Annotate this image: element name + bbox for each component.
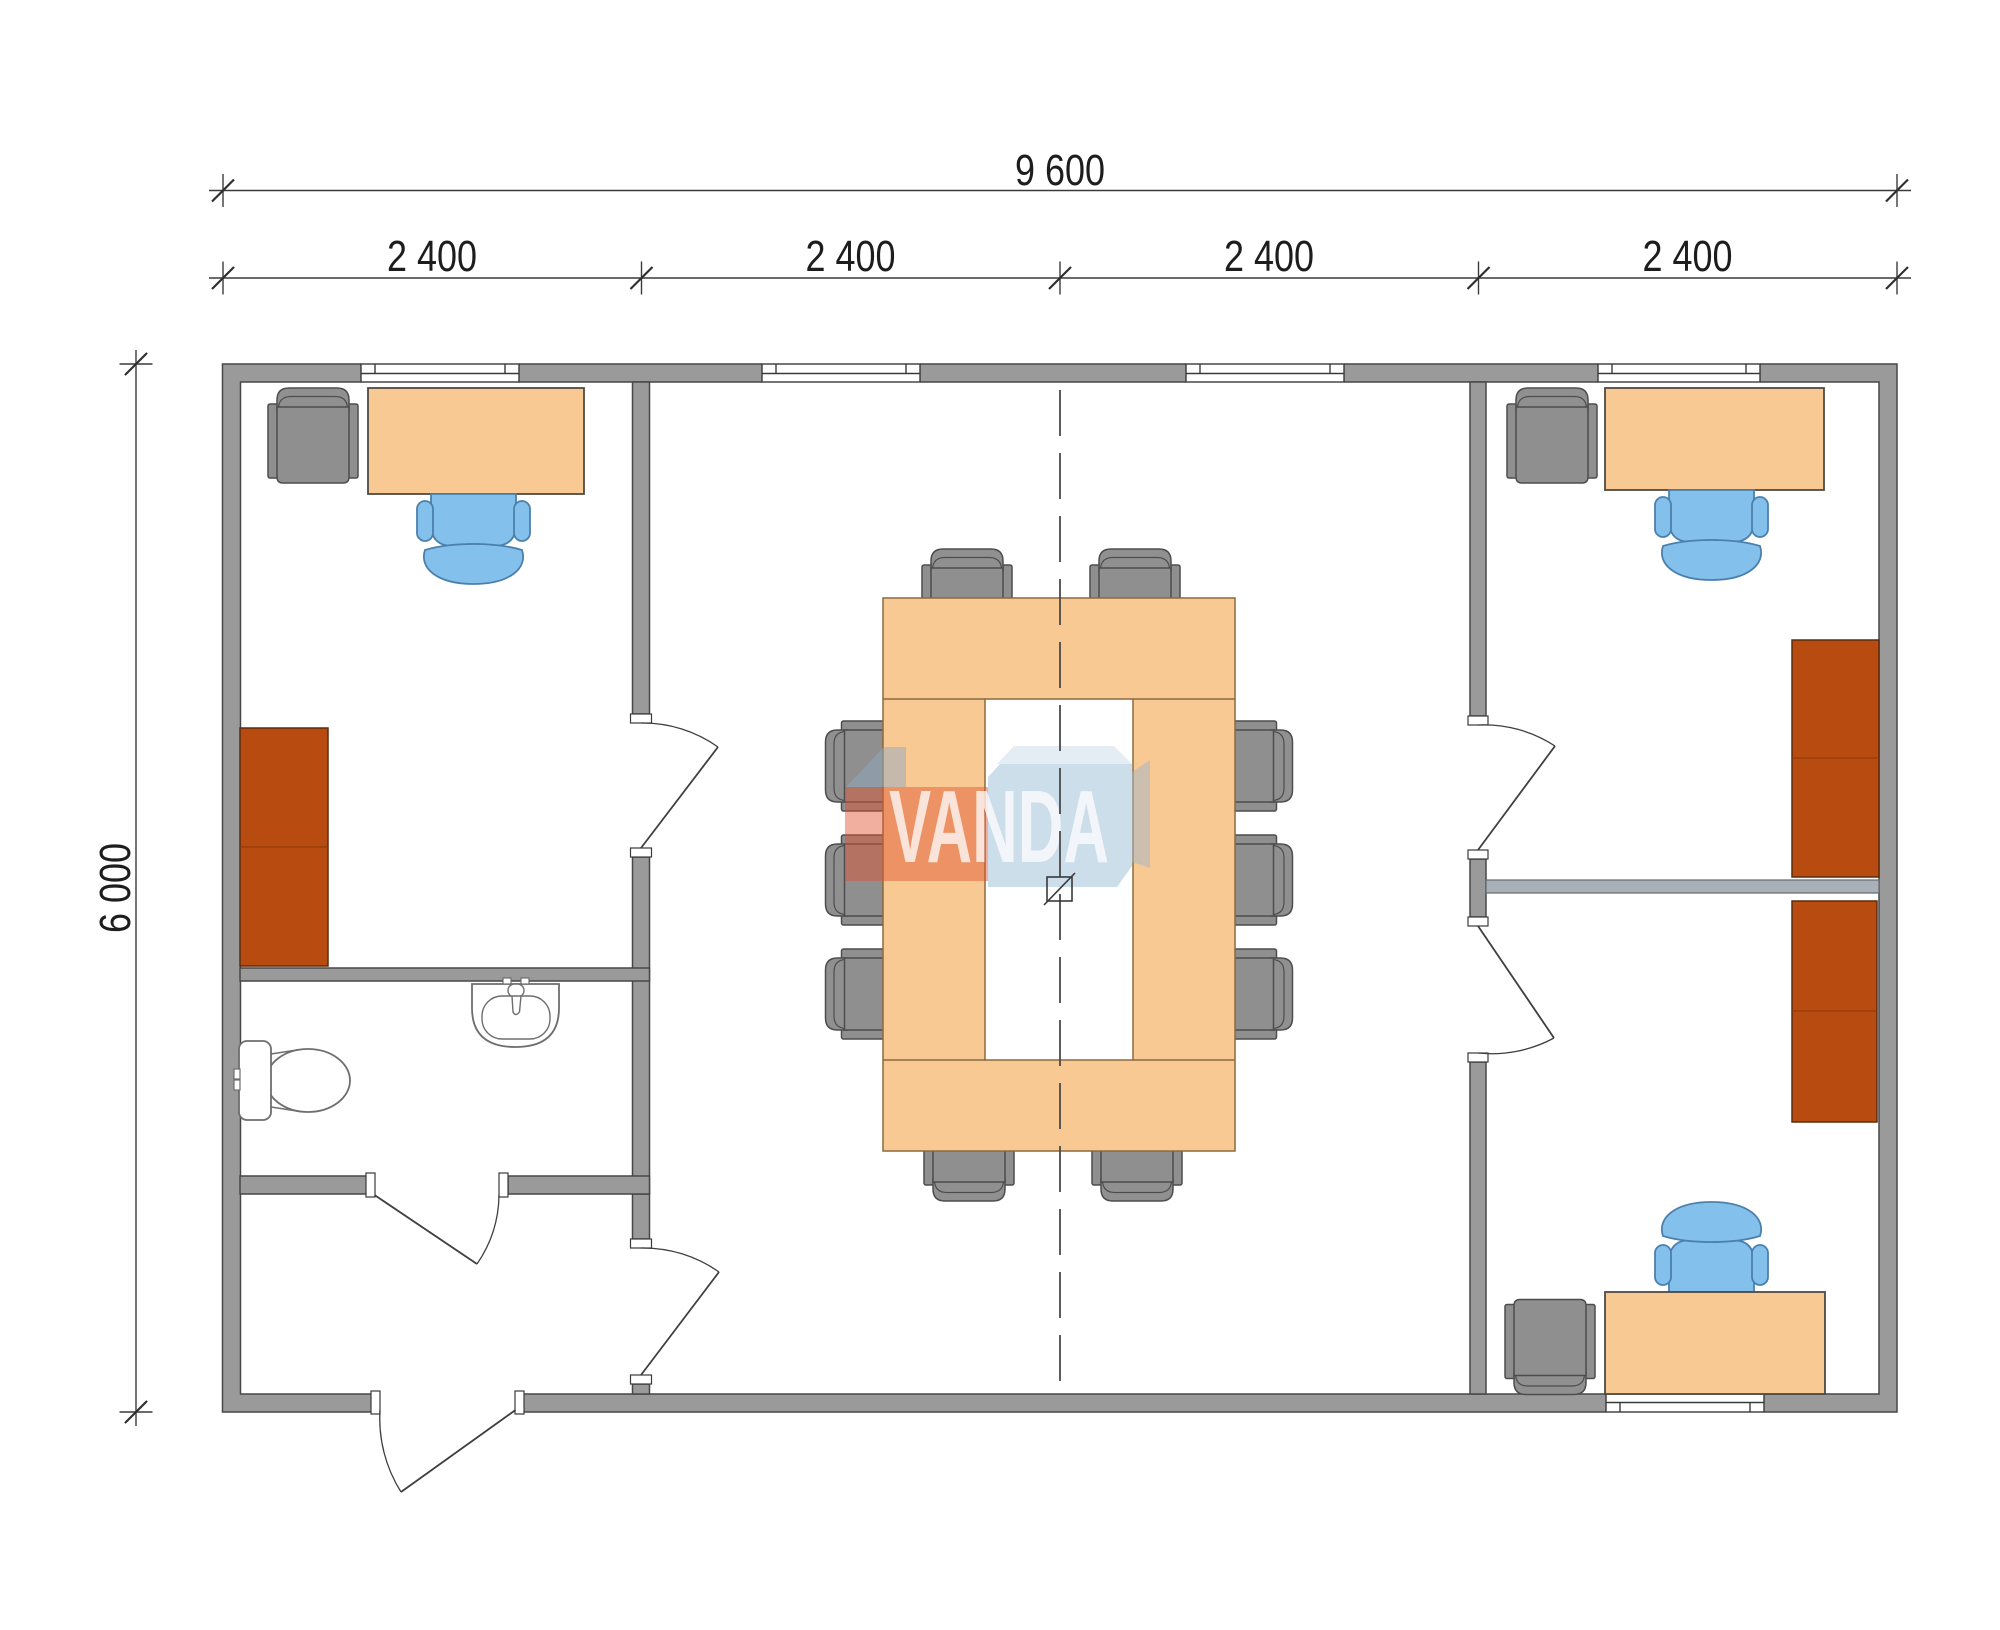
svg-text:VANDA: VANDA	[889, 769, 1109, 884]
svg-text:2 400: 2 400	[806, 232, 896, 281]
svg-text:9 600: 9 600	[1015, 146, 1105, 195]
svg-text:2 400: 2 400	[387, 232, 477, 281]
svg-text:6 000: 6 000	[91, 843, 140, 933]
svg-text:2 400: 2 400	[1224, 232, 1314, 281]
svg-text:2 400: 2 400	[1643, 232, 1733, 281]
